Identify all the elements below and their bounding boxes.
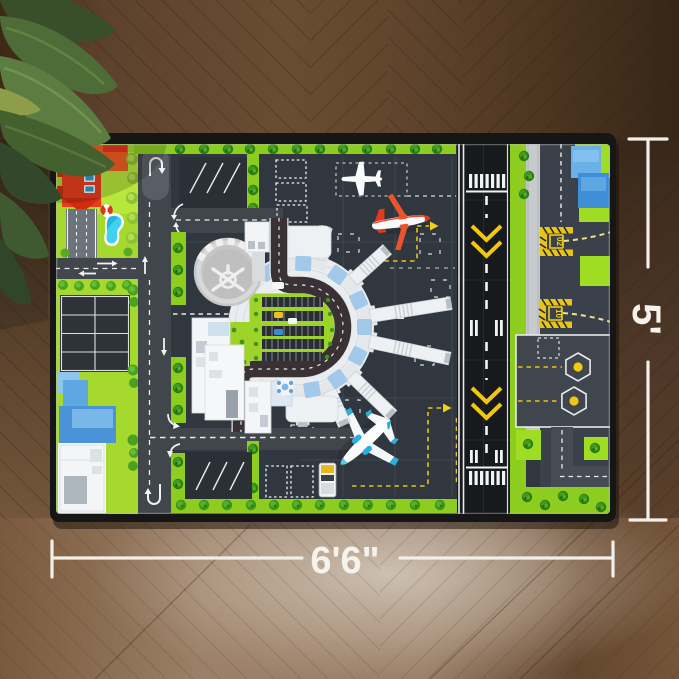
- svg-text:5': 5': [624, 303, 668, 335]
- svg-text:10: 10: [554, 309, 563, 318]
- svg-text:02: 02: [555, 237, 564, 246]
- svg-text:6'6": 6'6": [310, 540, 379, 582]
